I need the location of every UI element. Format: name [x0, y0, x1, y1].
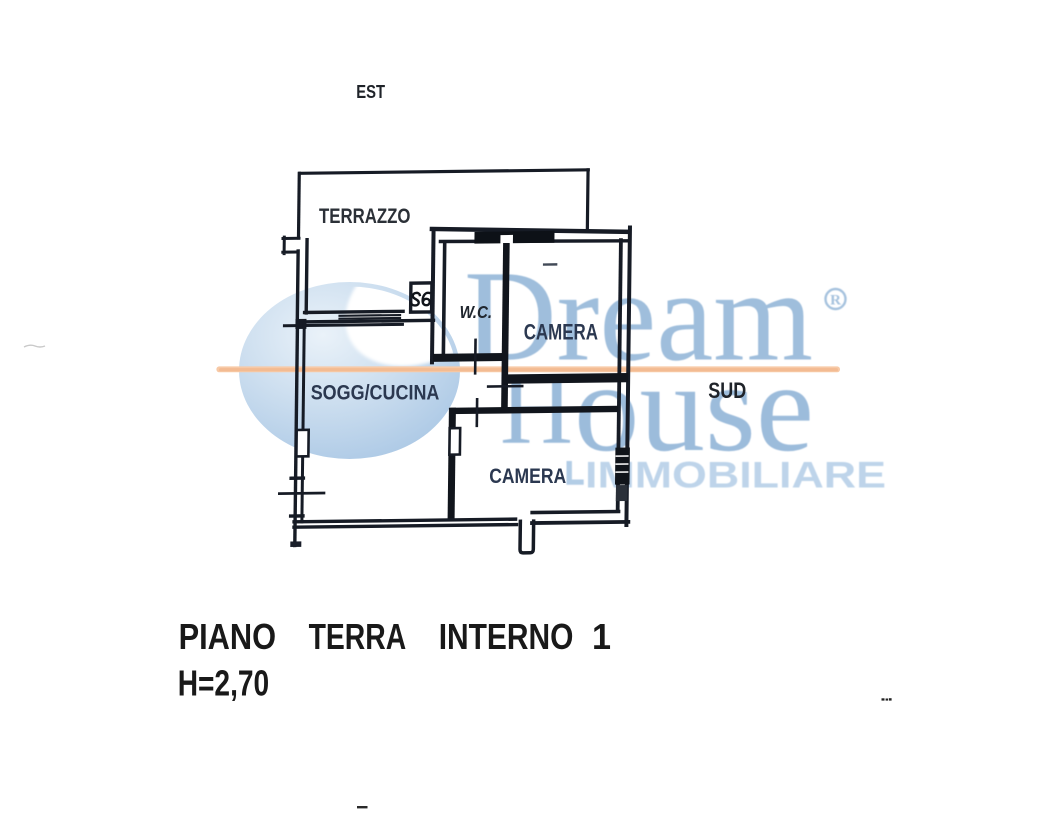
svg-text:H=2,70: H=2,70	[178, 663, 270, 704]
svg-text:IMMOBILIARE: IMMOBILIARE	[585, 455, 886, 496]
svg-text:SOGG/CUCINA: SOGG/CUCINA	[311, 382, 440, 405]
svg-text:CAMERA: CAMERA	[524, 320, 598, 345]
svg-text:W.C.: W.C.	[460, 302, 493, 322]
svg-text:PIANO: PIANO	[179, 616, 277, 657]
svg-text:EST: EST	[356, 82, 385, 102]
svg-text:1: 1	[592, 616, 611, 657]
svg-text:TERRA: TERRA	[309, 616, 407, 657]
svg-text:TERRAZZO: TERRAZZO	[319, 205, 411, 228]
svg-text:INTERNO: INTERNO	[439, 616, 574, 657]
svg-text:R: R	[830, 293, 841, 309]
svg-text:CAMERA: CAMERA	[489, 464, 566, 488]
svg-text:SUD: SUD	[708, 378, 746, 403]
